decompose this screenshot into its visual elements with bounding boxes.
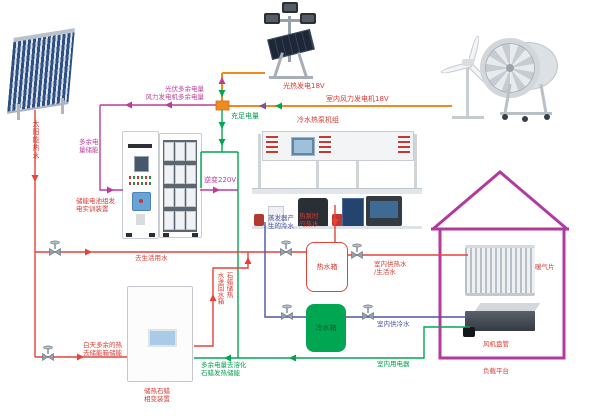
turbine-nacelle xyxy=(462,59,474,66)
pump xyxy=(254,214,264,226)
cabinet-screen xyxy=(134,156,149,172)
wind-turbine-and-duct-fan xyxy=(420,26,560,122)
cabinet-display-strip xyxy=(128,144,152,148)
heat-pump-unit-label: 冷水热泵机组 xyxy=(297,116,339,124)
hot-tank-label: 热水箱 xyxy=(317,262,338,272)
caster-wheel xyxy=(544,114,550,120)
valve-icon xyxy=(50,241,61,256)
fan-coil-motor xyxy=(463,327,475,337)
indicator-lights xyxy=(398,136,410,155)
stand-foot xyxy=(269,76,313,79)
indoor-wind-generator-label: 室内风力发电机18V xyxy=(326,95,389,103)
indoor-cold-label: 室内供冷水 xyxy=(377,320,410,328)
turbine-tower xyxy=(466,68,469,116)
shelf-row xyxy=(164,211,196,230)
shelf-row xyxy=(164,142,196,161)
valve-icon xyxy=(352,244,363,259)
button-row xyxy=(129,176,152,179)
solar-thermal-collector xyxy=(5,28,83,120)
sufficient-power-label: 充足电量 xyxy=(231,112,259,120)
lamp-icon xyxy=(282,2,298,13)
fan-coil-body xyxy=(465,311,535,331)
bench-post xyxy=(258,134,261,192)
collector-leg xyxy=(17,104,20,120)
fan-frame-leg xyxy=(539,84,547,114)
cabinet-foot xyxy=(149,233,155,237)
cold-tank-label: 冷水箱 xyxy=(316,323,337,333)
shelf-row xyxy=(164,165,196,184)
paraffin-device-label: 储热石蜡 相变装置 xyxy=(144,387,170,403)
pv-panel xyxy=(267,29,315,60)
indoor-hot-label: 室内供热水 /生活水 xyxy=(374,260,407,276)
paraffin-return-label: 石蜡储热 水送回水箱 xyxy=(215,272,233,322)
caster-wheel xyxy=(522,116,528,122)
valve-icon xyxy=(363,305,374,320)
collector-leg xyxy=(61,98,64,114)
junction-box xyxy=(216,101,229,110)
bench-tabletop xyxy=(252,188,422,194)
valve-icon xyxy=(281,241,292,256)
cabinet-foot xyxy=(192,233,198,237)
pv-sun-simulator xyxy=(263,2,323,84)
store-excess-label: 多余电 量储能 xyxy=(79,138,99,154)
hmi-screen xyxy=(291,137,315,156)
battery-control-cabinet xyxy=(122,131,159,239)
energy-system-diagram: 热水箱 冷水箱 太阳能热水 光伏多余电量 风力发电机多余电量 充足电量 光热发电… xyxy=(0,0,600,419)
indicator-lights xyxy=(266,136,278,155)
cold-water-tank: 冷水箱 xyxy=(306,304,346,352)
indicator-lights xyxy=(319,136,331,155)
cabinet-foot xyxy=(126,233,132,237)
fan-coil-label: 风机盘管 xyxy=(483,340,509,348)
paraffin-phase-change-cabinet xyxy=(127,286,193,382)
cabinet-foot xyxy=(163,233,169,237)
solar-hot-water-label: 太阳能热水 xyxy=(32,120,40,180)
inverter-label: 逆变220V xyxy=(204,176,236,184)
collector-tube-panel xyxy=(7,28,75,114)
blue-cold-water-pipes xyxy=(265,222,470,317)
pv-generation-label: 光热发电18V xyxy=(283,82,325,90)
hot-water-tank: 热水箱 xyxy=(306,242,348,292)
melt-paraffin-label: 多余电量去溶化 石蜡发热储能 xyxy=(201,361,247,377)
domestic-water-label: 去生活用水 xyxy=(135,254,168,262)
fan-coil-unit xyxy=(465,303,540,337)
lamp-icon xyxy=(264,13,280,24)
shelf-row xyxy=(164,188,196,207)
evaporator-cold-label: 蒸发器产 生的冷水 xyxy=(268,214,294,230)
radiator xyxy=(465,245,535,296)
inverter-module xyxy=(132,192,151,211)
heat-exchanger xyxy=(342,198,364,228)
day-excess-label: 白天多余的热 去储能箱储能 xyxy=(83,341,122,357)
turbine-base xyxy=(452,116,484,119)
radiator-label: 暖气片 xyxy=(535,263,555,271)
stand-leg xyxy=(297,52,307,78)
button-row xyxy=(129,182,152,185)
control-panel xyxy=(262,131,414,161)
electric-box xyxy=(366,196,402,226)
battery-shelves xyxy=(163,140,197,232)
battery-device-label: 储能电池组发 电实训装置 xyxy=(76,197,115,213)
valve-icon xyxy=(43,346,54,361)
excess-power-label: 光伏多余电量 风力发电机多余电量 xyxy=(140,85,204,101)
bench-post xyxy=(414,134,417,192)
valve-icon xyxy=(282,305,293,320)
caster-wheel xyxy=(502,114,508,120)
heat-pump-hot-label: 热泵时 的热水 xyxy=(299,212,319,228)
load-platform-label: 负载平台 xyxy=(483,367,509,375)
lamp-icon xyxy=(300,13,316,24)
indoor-appliances-label: 室内用电器 xyxy=(377,360,410,368)
cabinet-screen xyxy=(148,329,177,347)
battery-rack xyxy=(159,133,202,238)
cabinet-vent xyxy=(136,214,145,225)
